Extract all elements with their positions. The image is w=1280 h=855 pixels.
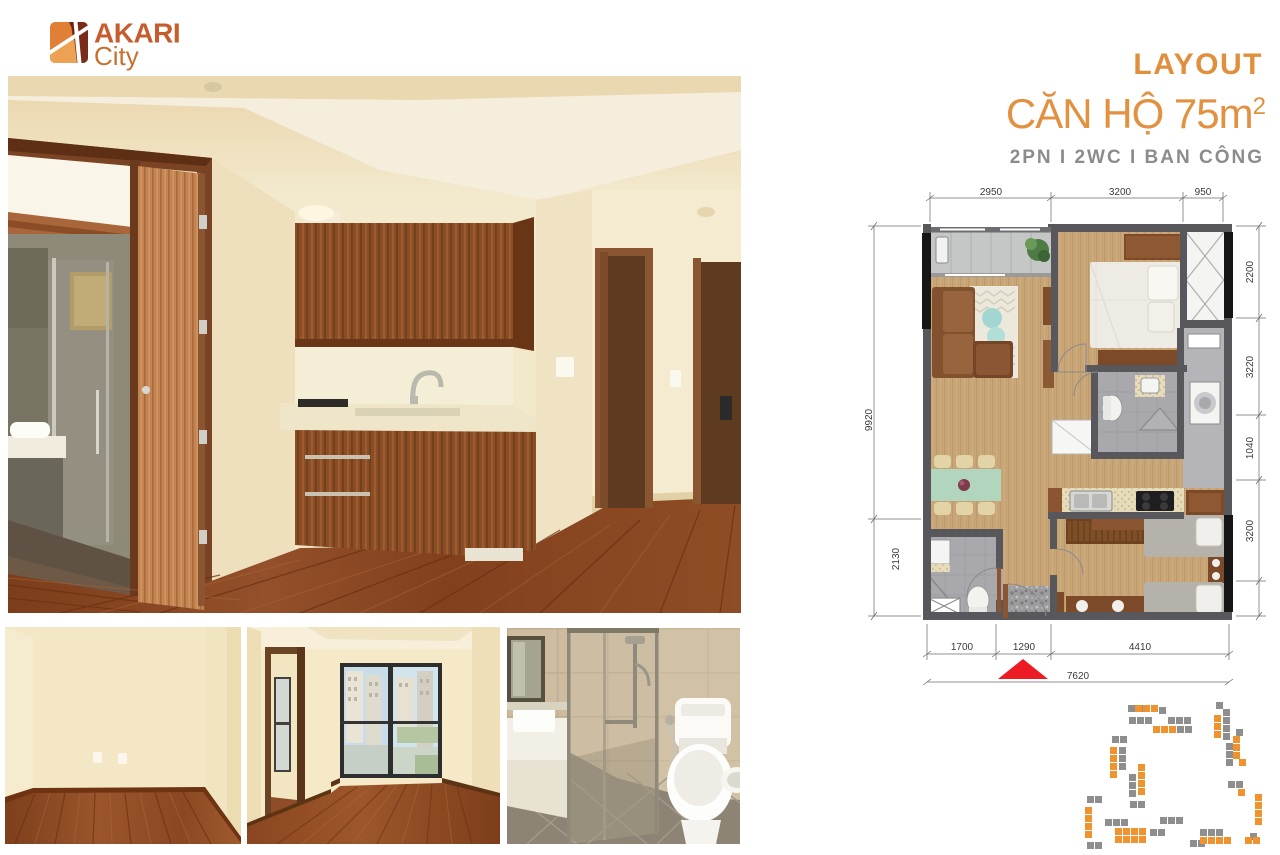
svg-text:4410: 4410 (1129, 642, 1152, 653)
svg-text:2950: 2950 (980, 187, 1003, 198)
svg-text:3200: 3200 (1109, 187, 1132, 198)
svg-text:1040: 1040 (1245, 436, 1256, 459)
svg-text:3200: 3200 (1245, 519, 1256, 542)
svg-text:7620: 7620 (1067, 671, 1090, 682)
svg-text:9920: 9920 (864, 408, 875, 431)
svg-text:1700: 1700 (951, 642, 974, 653)
svg-text:2130: 2130 (891, 547, 902, 570)
svg-text:City: City (94, 41, 139, 71)
svg-text:2200: 2200 (1245, 260, 1256, 283)
svg-text:3220: 3220 (1245, 355, 1256, 378)
svg-text:950: 950 (1195, 187, 1212, 198)
svg-text:1290: 1290 (1013, 642, 1036, 653)
